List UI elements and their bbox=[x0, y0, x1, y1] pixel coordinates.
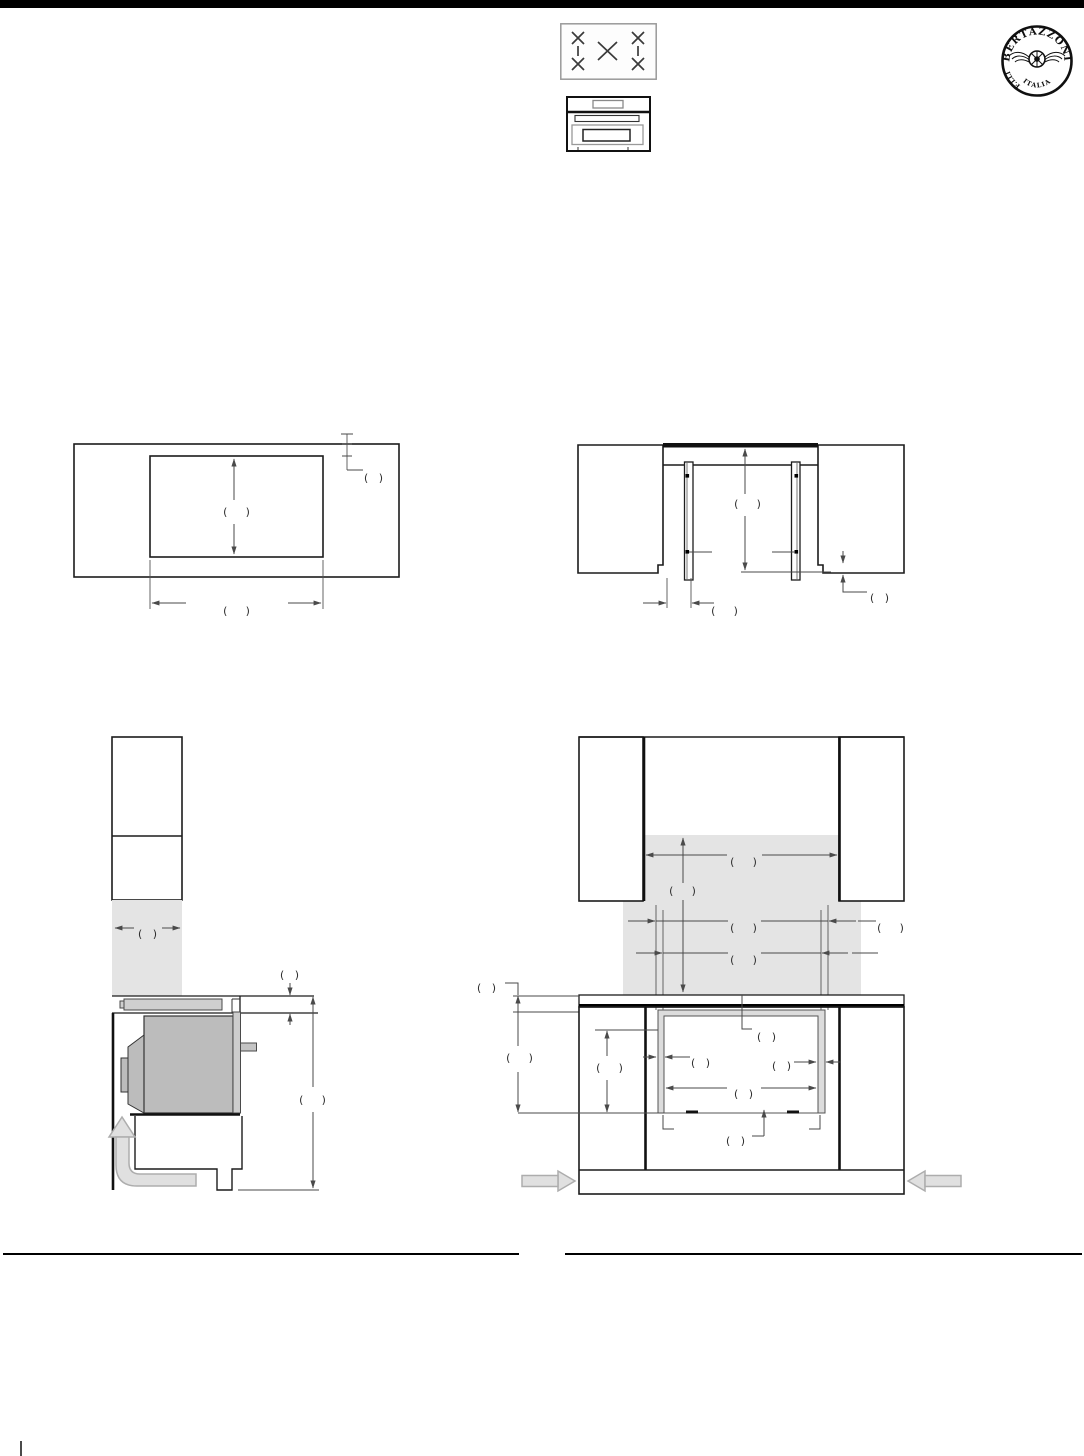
dimension-label: ( ) bbox=[505, 1052, 536, 1065]
footer-rule-right bbox=[565, 1253, 1082, 1255]
airflow-arrow-left-icon bbox=[522, 1171, 575, 1191]
dimension-label: ( ) bbox=[476, 982, 499, 995]
airflow-arrow-right-icon bbox=[908, 1171, 961, 1191]
dimension-label: ( ) bbox=[363, 472, 386, 485]
dimension-label: ( ) bbox=[595, 1062, 626, 1075]
dimension-label: ( ) bbox=[690, 1057, 713, 1070]
dimension-label: ( ) bbox=[298, 1094, 329, 1107]
dimension-label: ( ) bbox=[733, 1088, 756, 1101]
cutout-section-diagram bbox=[578, 443, 904, 608]
dimension-label: ( ) bbox=[771, 1060, 794, 1073]
dimension-label: ( ) bbox=[710, 605, 741, 618]
dimension-label: ( ) bbox=[869, 592, 892, 605]
binding-tick bbox=[20, 1441, 22, 1456]
footer-rule-left bbox=[3, 1253, 519, 1255]
airflow-arrow-icon bbox=[109, 1117, 196, 1186]
manual-page: BERTAZZONI F.LLI ITALIA bbox=[0, 0, 1084, 1456]
dimension-label: ( ) bbox=[876, 922, 907, 935]
dimension-label: ( ) bbox=[668, 885, 699, 898]
installation-diagrams bbox=[0, 0, 1084, 1456]
dimension-label: ( ) bbox=[729, 856, 760, 869]
dimension-label: ( ) bbox=[137, 928, 160, 941]
dimension-label: ( ) bbox=[733, 498, 764, 511]
side-installation-diagram bbox=[109, 737, 319, 1190]
dimension-label: ( ) bbox=[756, 1031, 779, 1044]
dimension-label: ( ) bbox=[729, 954, 760, 967]
cutout-top-view-diagram bbox=[74, 434, 399, 609]
dimension-label: ( ) bbox=[729, 922, 760, 935]
dimension-label: ( ) bbox=[279, 969, 302, 982]
dimension-label: ( ) bbox=[222, 605, 253, 618]
dimension-label: ( ) bbox=[725, 1135, 748, 1148]
dimension-label: ( ) bbox=[222, 506, 253, 519]
